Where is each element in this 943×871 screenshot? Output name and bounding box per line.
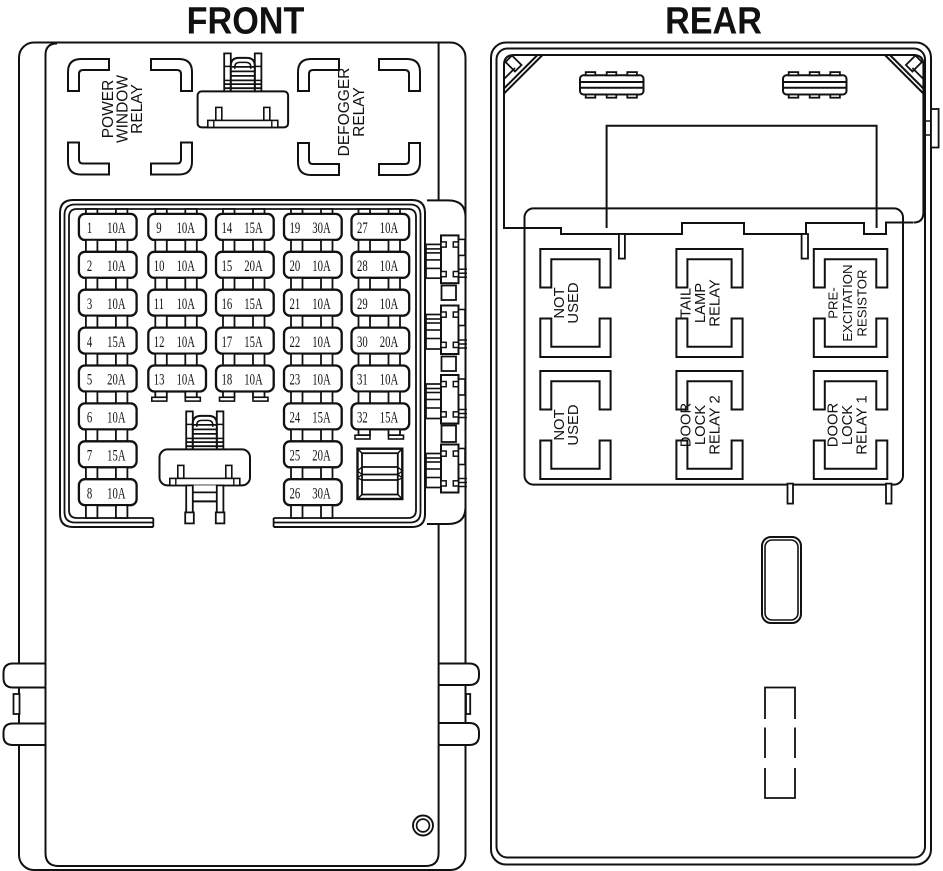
svg-text:15A: 15A [244, 333, 262, 351]
svg-text:RELAY: RELAY [351, 87, 368, 137]
svg-text:EXCITATION: EXCITATION [840, 264, 855, 341]
svg-text:12: 12 [154, 333, 165, 351]
svg-text:3: 3 [87, 295, 92, 313]
svg-text:2: 2 [87, 257, 92, 275]
svg-text:10A: 10A [380, 295, 398, 313]
svg-text:14: 14 [222, 219, 233, 237]
svg-text:16: 16 [222, 295, 233, 313]
svg-text:RELAY: RELAY [129, 84, 146, 134]
svg-text:4: 4 [87, 333, 92, 351]
svg-text:24: 24 [290, 408, 301, 426]
svg-text:20A: 20A [312, 446, 330, 464]
svg-text:26: 26 [290, 484, 301, 502]
svg-text:13: 13 [154, 371, 165, 389]
svg-text:10A: 10A [177, 257, 195, 275]
svg-text:10A: 10A [177, 333, 195, 351]
svg-text:9: 9 [156, 219, 161, 237]
svg-text:32: 32 [357, 408, 368, 426]
svg-text:15A: 15A [244, 219, 262, 237]
svg-text:7: 7 [87, 446, 92, 464]
svg-text:15A: 15A [107, 333, 125, 351]
svg-text:10A: 10A [107, 484, 125, 502]
svg-text:20: 20 [290, 257, 301, 275]
svg-text:10: 10 [154, 257, 165, 275]
svg-text:17: 17 [222, 333, 233, 351]
svg-text:USED: USED [566, 282, 582, 323]
svg-text:21: 21 [290, 295, 301, 313]
svg-text:15A: 15A [380, 408, 398, 426]
svg-text:15A: 15A [244, 295, 262, 313]
svg-text:11: 11 [154, 295, 164, 313]
svg-text:20A: 20A [380, 333, 398, 351]
svg-text:25: 25 [290, 446, 301, 464]
svg-text:RELAY 1: RELAY 1 [855, 395, 871, 455]
svg-text:10A: 10A [177, 371, 195, 389]
svg-text:PRE-: PRE- [826, 287, 841, 319]
svg-text:10A: 10A [380, 371, 398, 389]
svg-text:15: 15 [222, 257, 233, 275]
svg-text:10A: 10A [107, 295, 125, 313]
svg-text:22: 22 [290, 333, 301, 351]
svg-text:10A: 10A [380, 219, 398, 237]
svg-text:15A: 15A [107, 446, 125, 464]
svg-text:18: 18 [222, 371, 233, 389]
svg-text:10A: 10A [244, 371, 262, 389]
svg-text:30: 30 [357, 333, 368, 351]
svg-text:1: 1 [87, 219, 92, 237]
svg-text:10A: 10A [107, 408, 125, 426]
svg-text:10A: 10A [177, 219, 195, 237]
svg-text:10A: 10A [312, 295, 330, 313]
svg-text:30A: 30A [312, 484, 330, 502]
svg-text:6: 6 [87, 408, 92, 426]
svg-text:USED: USED [566, 404, 582, 445]
svg-text:19: 19 [290, 219, 301, 237]
svg-text:10A: 10A [312, 257, 330, 275]
svg-text:RELAY 2: RELAY 2 [708, 395, 724, 455]
svg-text:10A: 10A [312, 371, 330, 389]
svg-text:20A: 20A [244, 257, 262, 275]
svg-text:RELAY: RELAY [708, 279, 724, 327]
svg-text:10A: 10A [312, 333, 330, 351]
svg-text:23: 23 [290, 371, 301, 389]
svg-text:RESISTOR: RESISTOR [855, 269, 870, 336]
svg-text:30A: 30A [312, 219, 330, 237]
svg-text:10A: 10A [380, 257, 398, 275]
svg-text:29: 29 [357, 295, 368, 313]
svg-text:20A: 20A [107, 371, 125, 389]
svg-text:REAR: REAR [665, 0, 762, 42]
svg-text:15A: 15A [312, 408, 330, 426]
svg-text:10A: 10A [107, 257, 125, 275]
svg-text:27: 27 [357, 219, 368, 237]
svg-text:10A: 10A [177, 295, 195, 313]
svg-text:31: 31 [357, 371, 368, 389]
svg-text:FRONT: FRONT [187, 0, 305, 42]
svg-text:8: 8 [87, 484, 92, 502]
svg-text:28: 28 [357, 257, 368, 275]
svg-text:5: 5 [87, 371, 92, 389]
svg-text:10A: 10A [107, 219, 125, 237]
